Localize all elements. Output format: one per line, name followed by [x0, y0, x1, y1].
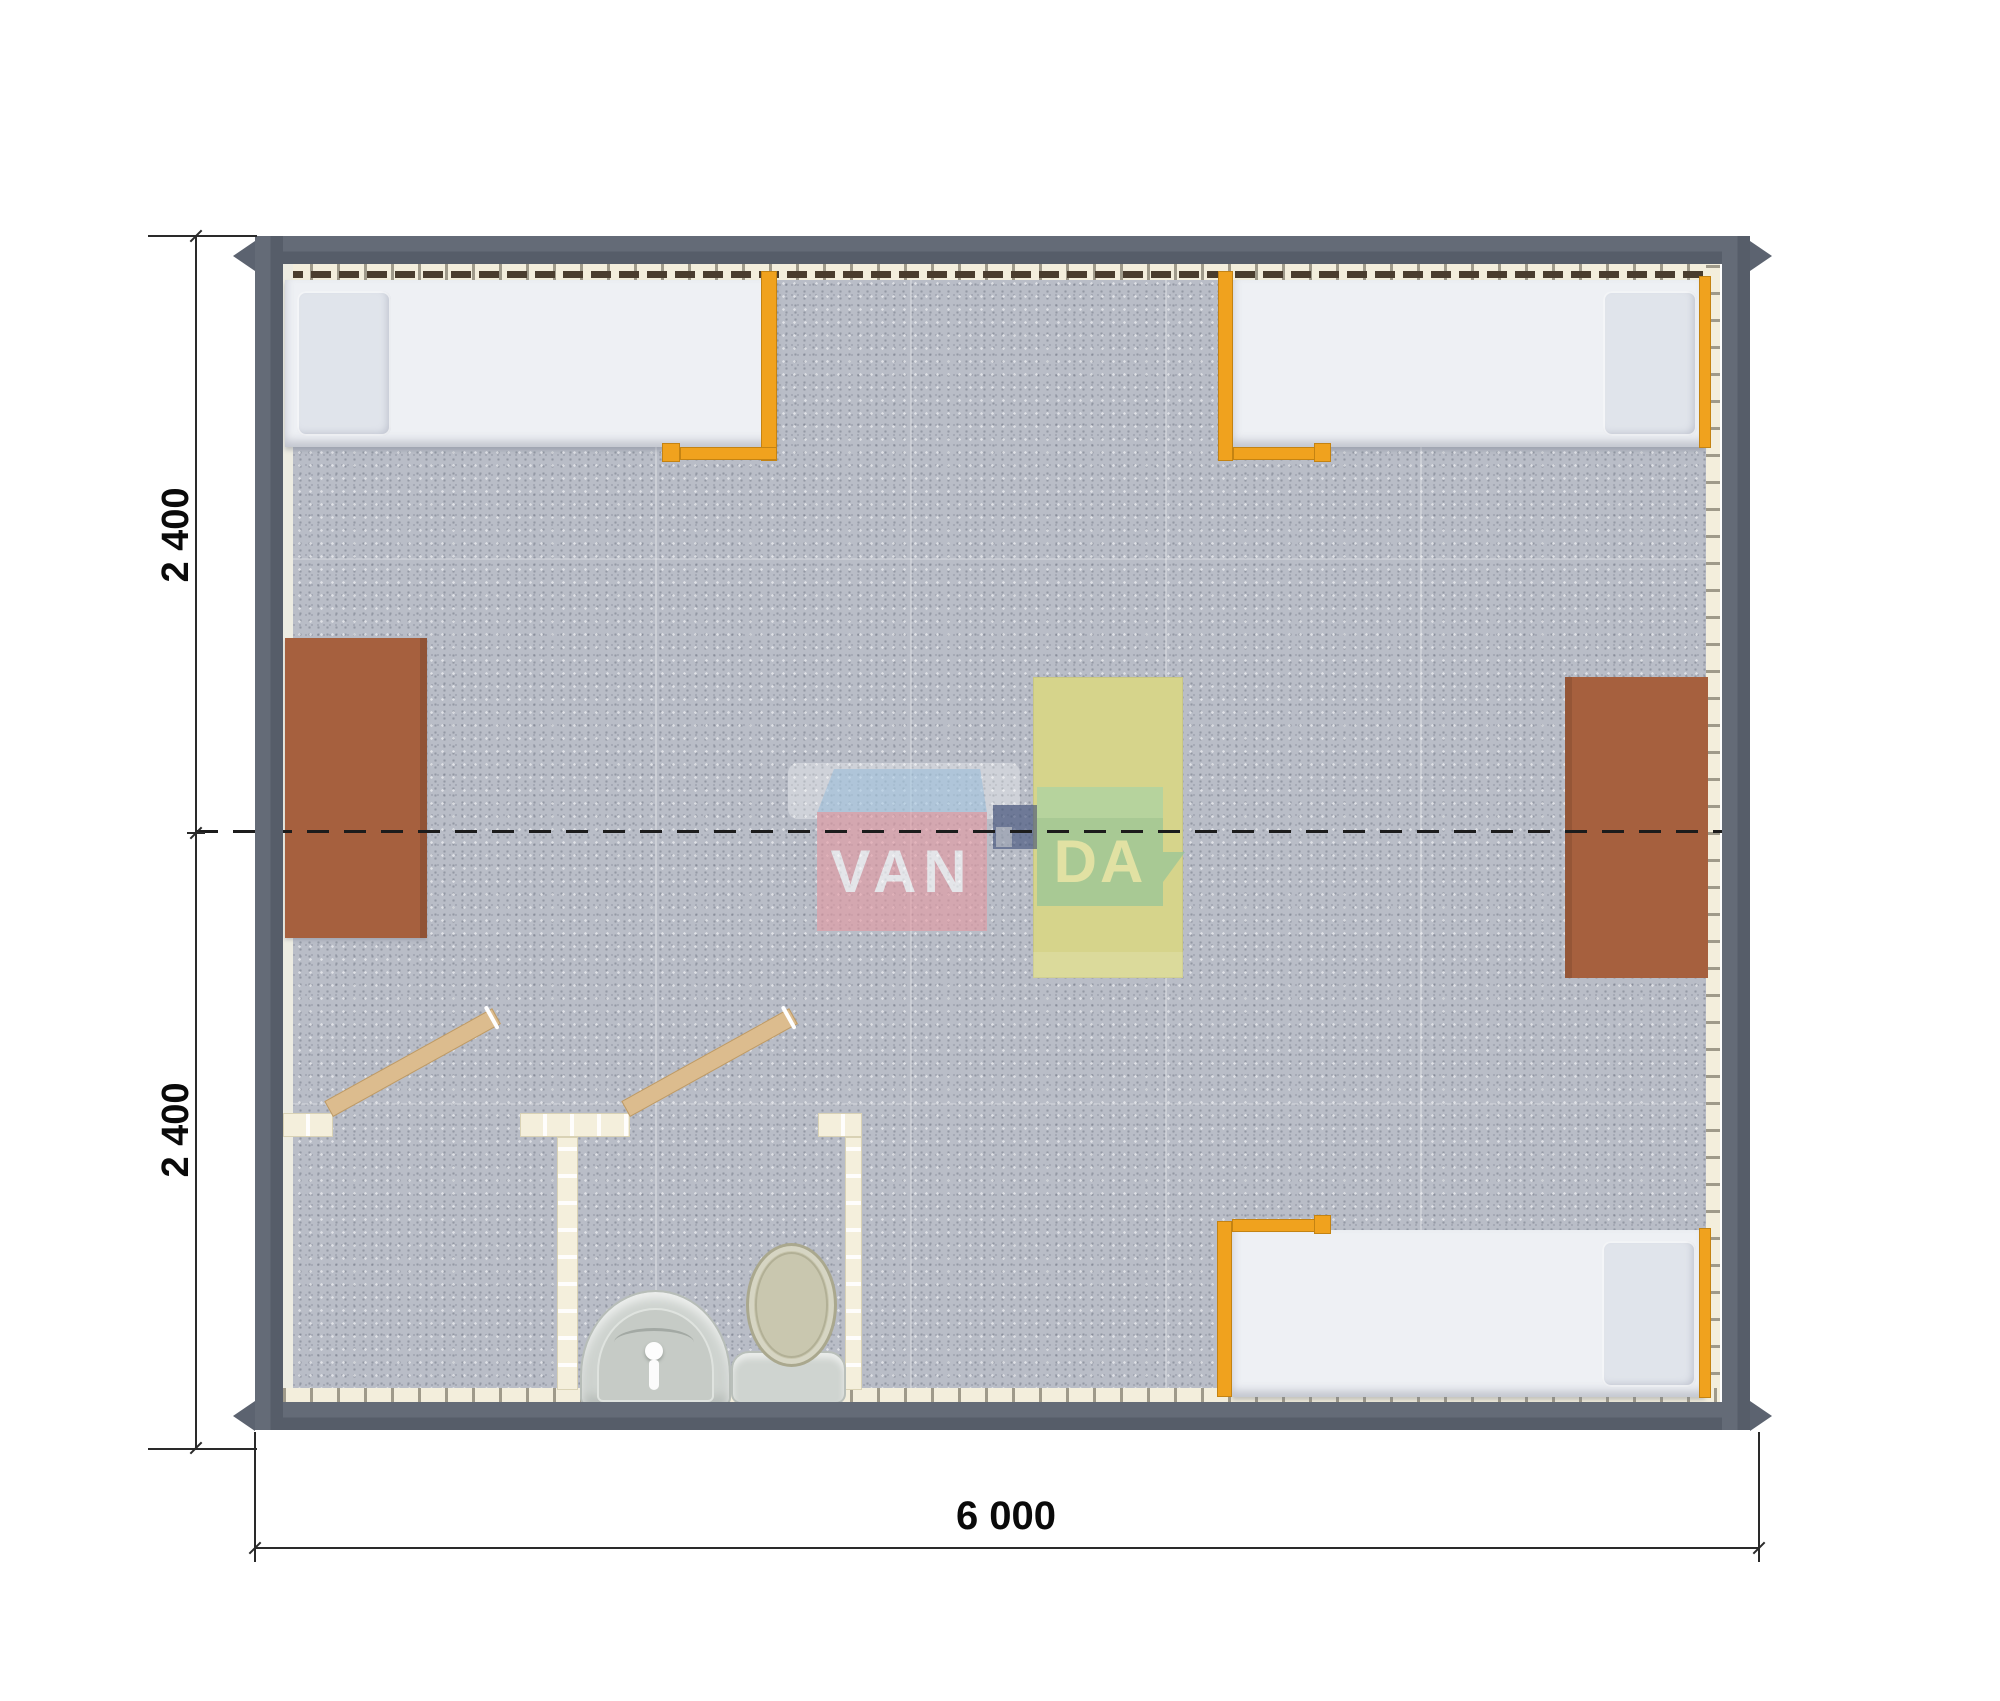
logo-cube-right-flap	[1163, 852, 1185, 882]
bed-bottom-right	[1232, 1230, 1705, 1397]
floor-plan-canvas: VAN DA 2 400 2 400 6 000	[0, 0, 2000, 1701]
dimension-line-horizontal	[255, 1547, 1760, 1549]
bed-frame-bar	[1218, 271, 1233, 461]
dimension-label-height-bottom: 2 400	[156, 1070, 196, 1190]
heater-strip	[283, 271, 1720, 278]
bed-pillow	[1603, 291, 1697, 436]
bathroom-wall-right	[845, 1137, 862, 1390]
toilet-lid	[746, 1243, 837, 1367]
bathroom-wall-divider	[557, 1137, 578, 1390]
faucet-icon	[645, 1342, 663, 1360]
dimension-label-width: 6 000	[906, 1496, 1106, 1536]
bed-frame-bar	[1233, 447, 1316, 460]
bathroom-wall-segment	[283, 1113, 333, 1137]
wall-bottom	[255, 1402, 1750, 1430]
bathroom-wall-segment	[818, 1113, 862, 1137]
bed-frame-post	[1314, 443, 1331, 462]
bed-frame-post	[1314, 1215, 1331, 1234]
bed-pillow	[297, 291, 391, 436]
bed-frame-bar	[1232, 1219, 1317, 1232]
bed-frame-bar	[680, 447, 777, 460]
bed-frame-bar	[761, 271, 777, 461]
bed-frame-post	[662, 443, 680, 462]
bed-frame-bar	[1699, 1228, 1711, 1398]
wall-left	[255, 236, 283, 1430]
dimension-line-vertical	[195, 236, 197, 1449]
bathroom-wall-segment	[520, 1113, 630, 1137]
corner-marker-top-right	[1750, 241, 1772, 271]
bed-frame-bar	[1217, 1221, 1232, 1397]
floor-seam	[283, 558, 1720, 560]
wall-right	[1722, 236, 1750, 1430]
bed-top-right	[1233, 280, 1705, 447]
desk-left	[285, 638, 427, 938]
bed-top-left	[285, 280, 777, 447]
section-line	[196, 830, 1750, 833]
bed-pillow	[1602, 1241, 1696, 1387]
desk-right	[1565, 677, 1708, 978]
corner-marker-bottom-right	[1750, 1401, 1772, 1431]
bed-frame-bar	[1699, 276, 1711, 448]
entry-door-handle-icon	[240, 1179, 253, 1217]
wall-top	[255, 236, 1750, 264]
extension-line	[1758, 1432, 1760, 1562]
extension-line	[148, 235, 257, 237]
logo-cube-right-top	[1037, 787, 1163, 819]
dimension-label-height-top: 2 400	[156, 475, 196, 595]
extension-line	[148, 1448, 257, 1450]
faucet-lever-icon	[649, 1360, 659, 1390]
logo-cube-top-face	[817, 769, 987, 813]
extension-line	[254, 1432, 256, 1562]
floor-seam	[283, 1103, 1720, 1105]
corner-marker-bottom-left	[233, 1401, 255, 1431]
corner-marker-top-left	[233, 241, 255, 271]
